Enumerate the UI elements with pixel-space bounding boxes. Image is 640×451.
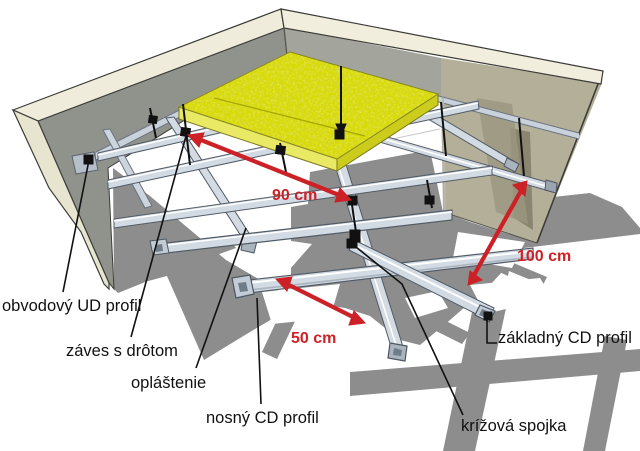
svg-text:90 cm: 90 cm: [272, 187, 317, 204]
svg-text:záves s drôtom: záves s drôtom: [66, 342, 178, 360]
svg-text:50 cm: 50 cm: [291, 330, 336, 347]
svg-text:obvodový UD profil: obvodový UD profil: [2, 297, 141, 315]
svg-text:nosný CD profil: nosný CD profil: [206, 409, 319, 427]
svg-text:krížová spojka: krížová spojka: [461, 417, 567, 435]
svg-text:100 cm: 100 cm: [517, 248, 571, 265]
svg-text:základný CD profil: základný CD profil: [498, 329, 632, 347]
svg-text:opláštenie: opláštenie: [131, 374, 206, 392]
